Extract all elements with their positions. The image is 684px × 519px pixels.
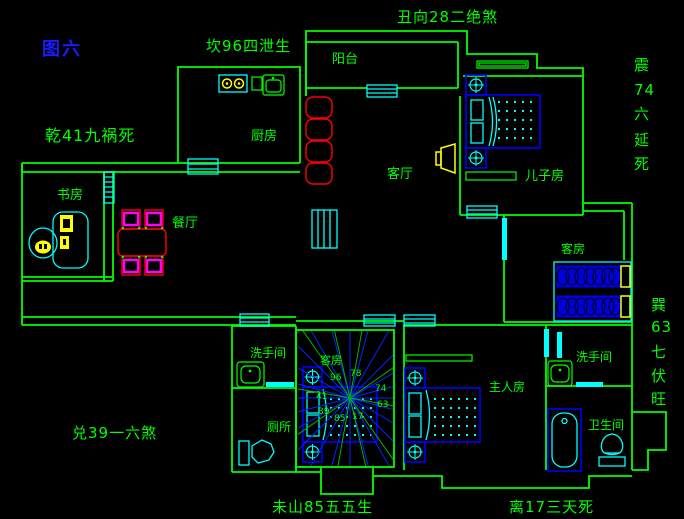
study-furniture (29, 212, 88, 268)
fengshui-chou: 丑向28二绝煞 (397, 8, 498, 26)
fengshui-zhen-vertical: 震 74 六 延 死 (634, 56, 655, 173)
wall-balcony (306, 42, 458, 96)
compass-number-e: 63 (377, 400, 388, 410)
wall-speaker (436, 144, 455, 173)
compass-number-sw: 39 (318, 407, 330, 417)
window-living-screen (312, 210, 337, 248)
fengshui-li: 离17三天死 (509, 498, 594, 516)
door-bathroom (576, 382, 603, 387)
kitchen-sink (263, 75, 284, 95)
master-shelf (406, 355, 472, 361)
room-label-toilet: 厕所 (267, 420, 291, 434)
room-label-balcony: 阳台 (332, 52, 358, 67)
fengshui-xun-vertical: 巽 63 七 伏 旺 (651, 296, 672, 408)
plants-strip (306, 97, 332, 184)
room-label-bathroom: 卫生间 (588, 418, 624, 432)
dining-chair (145, 210, 163, 229)
figure-label: 图六 (42, 38, 82, 60)
bathtub (548, 409, 581, 471)
dining-furniture (118, 210, 166, 275)
door-living-guest (502, 218, 507, 260)
room-label-living: 客厅 (387, 166, 413, 182)
dining-chair (122, 210, 140, 229)
master-bed (405, 388, 480, 442)
bathroom-fixtures (548, 361, 625, 471)
room-label-kitchen: 厨房 (251, 128, 277, 144)
fengshui-xun-char: 七 (651, 343, 667, 361)
fengshui-xun-char: 旺 (651, 390, 667, 408)
desk-computer (60, 215, 73, 249)
window-son-room (467, 206, 497, 218)
fengshui-xun-char: 伏 (651, 367, 667, 385)
fengshui-wei: 未山85五五生 (272, 498, 373, 516)
floorplan-canvas: 96 78 74 63 17 85 39 41 (0, 0, 684, 519)
guest-bed (557, 296, 630, 317)
kitchen-counter (252, 77, 262, 90)
wall-entry-bump (321, 467, 373, 494)
fengshui-qian: 乾41九祸死 (45, 126, 135, 145)
kitchen-fixtures (219, 75, 284, 95)
compass-number-nw: 96 (330, 373, 342, 383)
room-label-washroom-right: 洗手间 (576, 350, 612, 364)
washroom-left-fixtures (237, 362, 274, 465)
lamp-icon (407, 370, 423, 386)
compass-number-w: 41 (316, 392, 327, 402)
fengshui-xun-char: 巽 (651, 296, 667, 314)
fengshui-dui: 兑39一六煞 (72, 424, 157, 442)
compass-rays-green (242, 290, 459, 507)
room-label-study: 书房 (57, 187, 83, 203)
dining-chair (145, 256, 163, 275)
compass-number-n: 78 (350, 369, 362, 379)
guest-room-beds (554, 262, 631, 321)
compass-number-s: 85 (334, 414, 345, 424)
room-label-washroom-left: 洗手间 (250, 346, 286, 360)
lamp-icon (305, 444, 321, 460)
fengshui-zhen-char: 震 (634, 56, 650, 74)
stove (219, 75, 247, 92)
doors (266, 218, 603, 387)
fengshui-kan: 坎96四泄生 (206, 37, 291, 55)
window-balcony (367, 85, 397, 97)
son-cabinet-inner (479, 63, 526, 66)
son-shelf (466, 172, 516, 180)
room-label-son: 儿子房 (525, 168, 564, 184)
son-bed (466, 95, 540, 148)
compass-number-se: 17 (352, 412, 363, 422)
sink (237, 362, 264, 387)
compass-number-ne: 74 (375, 384, 387, 394)
room-label-master: 主人房 (489, 379, 525, 394)
fengshui-zhen-char: 延 (634, 131, 650, 149)
door-toilet (266, 382, 294, 387)
son-cabinet (477, 61, 528, 68)
room-label-guest-center: 客房 (320, 353, 342, 367)
wall-kitchen (178, 67, 300, 163)
master-room-furniture (405, 355, 480, 462)
fengshui-xun-char: 63 (651, 318, 672, 336)
fengshui-zhen-char: 六 (634, 105, 650, 123)
son-room-furniture (466, 61, 540, 180)
sink (548, 361, 572, 386)
lamp-icon (407, 444, 423, 460)
door-master (544, 329, 549, 357)
guest-bed (557, 266, 630, 287)
lamp-icon (468, 150, 484, 166)
dining-chair (122, 256, 140, 275)
wall-son-room (460, 76, 583, 215)
floorplan-drawing: 96 78 74 63 17 85 39 41 (0, 0, 684, 519)
room-label-guest-right: 客房 (561, 241, 585, 256)
lamp-icon (468, 77, 484, 93)
door-washroom-right (557, 332, 562, 358)
wall-bottom-right (373, 476, 632, 488)
toilet (239, 440, 274, 465)
fengshui-zhen-char: 74 (634, 81, 655, 99)
wall-right-jut (632, 412, 666, 470)
lamp-icon (305, 369, 321, 385)
toilet (599, 434, 625, 466)
room-label-dining: 餐厅 (172, 215, 198, 231)
fengshui-zhen-char: 死 (634, 155, 650, 173)
dining-table (118, 229, 166, 256)
wall-top-left-double (22, 163, 300, 172)
